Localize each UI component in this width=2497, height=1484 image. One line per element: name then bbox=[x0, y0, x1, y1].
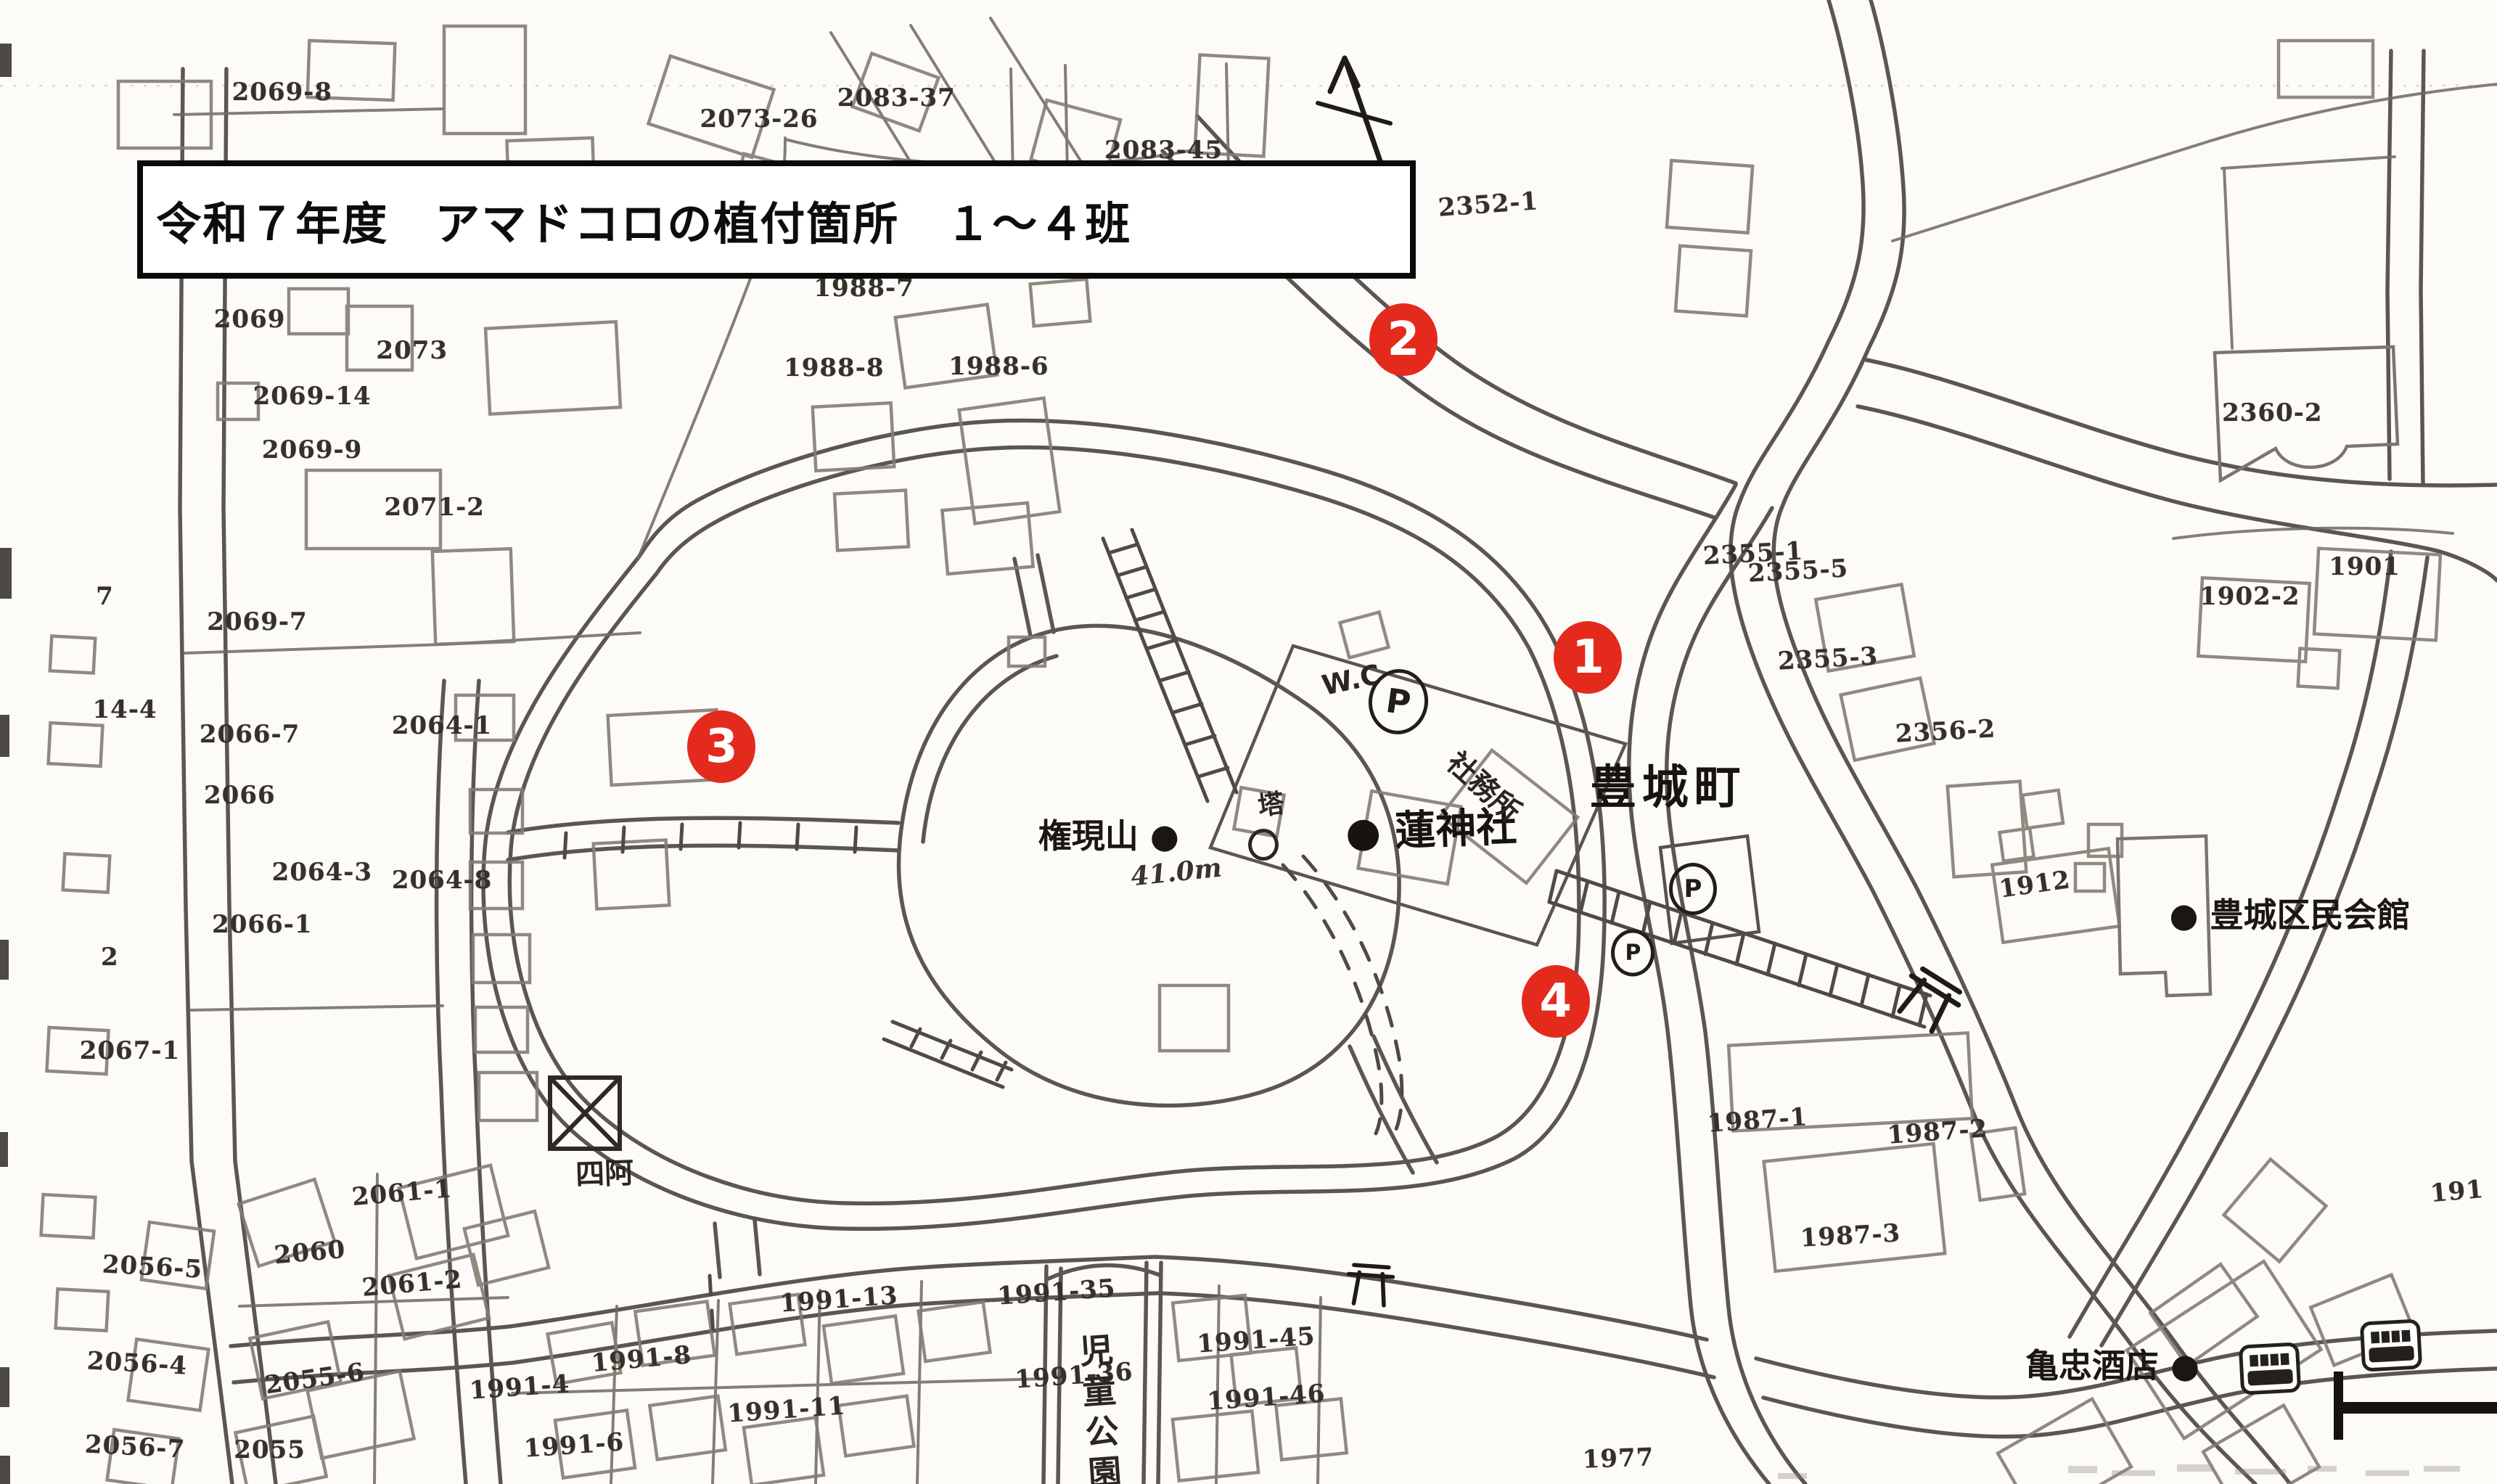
planting-site-marker-2: 2 bbox=[1369, 303, 1438, 376]
parking-letter: P bbox=[1625, 940, 1641, 965]
mountain-label-gongenyama: 権現山 ● bbox=[1038, 810, 1179, 858]
planting-site-marker-1: 1 bbox=[1554, 621, 1622, 694]
map-title: 令和７年度 アマドコロの植付箇所 １～４班 bbox=[156, 187, 1131, 253]
district-label-toyoshirocho: 豊城町 bbox=[1590, 750, 1747, 817]
parking-icon-2: P bbox=[1669, 863, 1717, 915]
map-title-box: 令和７年度 アマドコロの植付箇所 １～４班 bbox=[137, 160, 1416, 279]
parking-letter: P bbox=[1384, 681, 1414, 723]
scanned-map-page: 2069-82073-262083-372083-452352-11988-72… bbox=[0, 0, 2497, 1484]
community-hall-label: ● 豊城区民会館 bbox=[2169, 889, 2410, 937]
planting-site-marker-3: 3 bbox=[687, 710, 755, 783]
parking-icon-3: P bbox=[1611, 929, 1655, 976]
tower-label: 塔 bbox=[1255, 782, 1287, 824]
gazebo-label: 四阿 bbox=[575, 1149, 634, 1193]
tower-marker-circle bbox=[1248, 829, 1279, 861]
parking-letter: P bbox=[1684, 874, 1702, 903]
liquor-store-label: 亀忠酒店 ● bbox=[2025, 1340, 2199, 1387]
planting-site-marker-4: 4 bbox=[1522, 965, 1590, 1038]
